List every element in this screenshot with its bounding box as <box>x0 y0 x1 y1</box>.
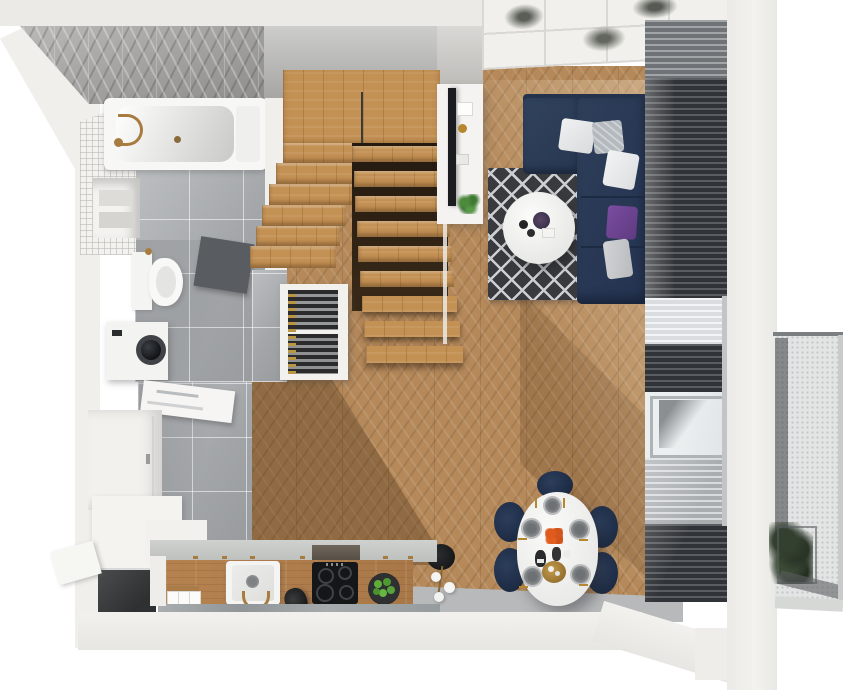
cabinet-handle-brass <box>300 556 305 559</box>
place-setting-plate <box>543 496 562 515</box>
green-apple <box>387 586 395 594</box>
stair-railing-edge <box>443 224 447 344</box>
niche-shelf <box>99 212 133 228</box>
panel-plant-decal <box>504 3 544 31</box>
orange-flower-centerpiece <box>545 528 563 544</box>
wardrobe-door-line <box>152 416 154 504</box>
right-outer-wall <box>727 0 777 690</box>
door-handle-bar <box>157 390 199 398</box>
hob-burner <box>316 584 334 602</box>
small-cup <box>563 550 571 558</box>
cabinet-handle-brass <box>408 556 413 559</box>
washing-machine <box>106 322 168 380</box>
floating-step <box>358 246 452 262</box>
wine-rack-cabinet <box>280 284 348 380</box>
tray-glass <box>555 571 560 576</box>
bath-tap-handle <box>114 138 123 147</box>
wine-bottle <box>552 547 561 561</box>
hob-burner <box>339 585 354 600</box>
floating-step <box>366 346 463 363</box>
window-wall-band <box>645 20 733 602</box>
potted-plant <box>457 194 481 214</box>
balcony-right-rim <box>838 335 843 603</box>
stair-step <box>256 226 340 246</box>
entry-door-open-outside <box>50 541 102 586</box>
toilet-bowl <box>149 258 183 306</box>
blinds-diagonal-light <box>645 458 733 602</box>
wine-bottle-tips <box>288 290 296 374</box>
cutlery-gold <box>519 586 528 588</box>
sink-drain <box>246 575 259 588</box>
pillow-white <box>558 118 596 154</box>
green-apple <box>379 589 387 597</box>
hob-burner <box>318 568 334 584</box>
cutlery-gold <box>579 584 588 586</box>
floor-plan-stage <box>0 0 843 700</box>
toilet-seat <box>156 266 176 298</box>
corner-sofa <box>523 94 653 306</box>
hall-wardrobe <box>88 410 162 510</box>
cabinet-handle-brass <box>193 556 198 559</box>
cabinet-handle-brass <box>222 556 227 559</box>
kitchen-sink <box>226 561 280 605</box>
pillow-white-textured <box>602 149 640 190</box>
washer-detergent-drawer <box>112 330 122 336</box>
window-glass <box>645 392 733 458</box>
media-card <box>457 102 473 116</box>
tray-glass <box>548 566 554 572</box>
floating-step <box>355 196 448 212</box>
balcony-bottom-rim <box>775 596 843 612</box>
lamp-glass-globe <box>444 582 455 593</box>
green-apple <box>383 578 391 586</box>
balcony <box>773 330 843 615</box>
pillow-grey <box>602 238 633 279</box>
induction-hob <box>312 562 358 604</box>
place-setting-plate <box>570 564 591 585</box>
floating-step <box>360 271 454 287</box>
bath-drain <box>174 136 181 143</box>
balcony-wall-shadow <box>775 338 788 536</box>
place-setting-plate <box>522 566 543 587</box>
panel-plant-decal <box>632 0 678 20</box>
place-setting-plate <box>521 518 542 539</box>
blinds-half-open <box>645 20 733 78</box>
green-apple <box>374 580 382 588</box>
stair-step <box>269 184 353 205</box>
fruit-bowl <box>368 573 400 605</box>
tv-sideboard <box>437 84 483 224</box>
sofa-seam <box>581 196 647 198</box>
hob-burner <box>338 566 352 580</box>
bottom-outer-wall <box>78 612 642 650</box>
bathtub <box>104 98 267 170</box>
floating-step <box>352 146 444 162</box>
place-setting-plate <box>569 519 590 540</box>
hob-controls <box>326 563 346 566</box>
cutlery-gold <box>535 498 537 508</box>
cabinet-handle-brass <box>383 556 388 559</box>
dining-table <box>517 492 598 606</box>
gold-serving-tray <box>542 561 566 583</box>
stair-step <box>250 246 336 268</box>
panel-plant-decal <box>582 24 626 52</box>
niche-shelf <box>99 190 133 206</box>
floating-step <box>354 171 446 187</box>
cutlery-gold <box>563 498 565 508</box>
window-reflection <box>659 400 715 448</box>
sheer-curtain-bright <box>645 298 725 344</box>
pillow-grey-pattern <box>591 120 624 155</box>
gold-decor-disc <box>458 124 467 133</box>
pendant-cord <box>361 92 363 144</box>
wardrobe-handle <box>146 454 150 464</box>
stair-step <box>262 205 346 226</box>
cutlery-gold <box>518 538 527 540</box>
pillow-purple <box>606 205 638 240</box>
stair-step <box>276 163 360 184</box>
counter-end-panel <box>150 556 166 606</box>
cabinet-handle-brass <box>250 556 255 559</box>
tv-flatscreen <box>448 88 456 206</box>
washer-door-glass <box>141 340 161 360</box>
balcony-top-edge <box>773 332 843 336</box>
green-apple <box>373 588 380 595</box>
remote-control <box>456 154 469 165</box>
blinds-mid <box>645 344 733 392</box>
cutlery-gold <box>579 539 588 541</box>
extractor-hood <box>312 545 360 560</box>
room-dining <box>490 460 650 620</box>
blinds-sheen <box>645 78 733 298</box>
decanter-band <box>537 559 544 563</box>
bathroom-shelf-niche <box>93 178 140 238</box>
canister-wood-lids <box>167 586 199 591</box>
toilet-brush-brass <box>145 248 152 255</box>
